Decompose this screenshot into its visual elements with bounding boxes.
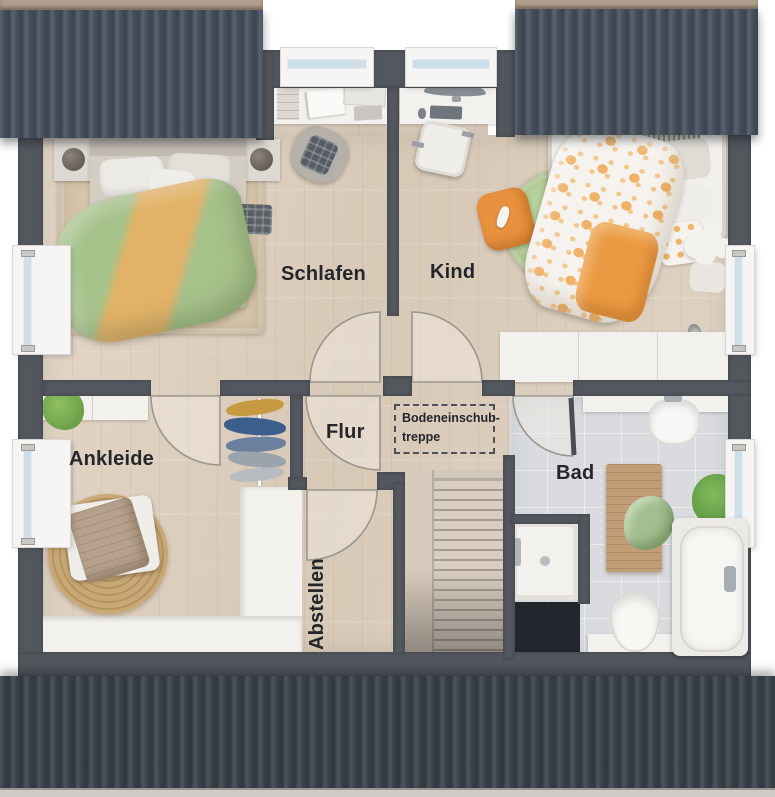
attic-hatch-line2: treppe bbox=[402, 428, 493, 447]
window-handle bbox=[21, 538, 35, 545]
roof-ridge-top-right bbox=[515, 0, 758, 9]
desk-chair bbox=[413, 119, 472, 178]
window-glass bbox=[287, 59, 367, 69]
floor-plan: Schlafen Kind Ankleide Flur Abstellen Ba… bbox=[0, 0, 775, 797]
door-arc-ankleide bbox=[151, 396, 220, 465]
wall-band-2 bbox=[220, 380, 310, 396]
wall-band-4 bbox=[573, 380, 751, 396]
roof-bottom bbox=[0, 676, 775, 788]
roof-ridge-top-left bbox=[0, 0, 263, 10]
window-handle bbox=[21, 250, 35, 257]
open-book bbox=[305, 88, 346, 118]
stair-shadow bbox=[405, 470, 503, 652]
monitor-stand bbox=[452, 96, 461, 102]
room-label-ankleide: Ankleide bbox=[69, 448, 154, 471]
wall-shower-right bbox=[578, 514, 590, 604]
window-handle bbox=[732, 444, 746, 451]
wall-band-1 bbox=[43, 380, 151, 396]
window-glass bbox=[412, 59, 490, 69]
bathtub-faucet bbox=[724, 566, 736, 592]
wall-band-center-block bbox=[383, 376, 412, 396]
door-arc-kind bbox=[412, 312, 482, 382]
room-label-flur: Flur bbox=[326, 421, 365, 444]
window-handle bbox=[732, 345, 746, 352]
wall-closet-right bbox=[290, 396, 303, 487]
window-handle bbox=[732, 250, 746, 257]
staircase bbox=[405, 470, 503, 652]
roof-top-left bbox=[0, 10, 263, 138]
sink bbox=[648, 399, 700, 445]
cloud-side-table bbox=[684, 234, 708, 258]
room-label-bad: Bad bbox=[556, 462, 594, 485]
wall-bad-left bbox=[503, 455, 515, 660]
wall-abstellen-left bbox=[288, 477, 307, 490]
window-dormer-kind bbox=[406, 48, 496, 86]
wardrobe-bottom-row bbox=[40, 616, 302, 652]
window-handle bbox=[21, 444, 35, 451]
shower-drain bbox=[540, 556, 550, 566]
wall-divider-schlafen-kind bbox=[387, 88, 399, 316]
dark-floor-panel bbox=[514, 602, 580, 652]
nightstand-left-lamp bbox=[62, 148, 85, 171]
wall-stairs-left bbox=[393, 482, 405, 655]
wall-bottom bbox=[18, 652, 751, 678]
nightstand-right-lamp bbox=[250, 148, 273, 171]
room-label-schlafen: Schlafen bbox=[281, 263, 366, 286]
window-kind bbox=[726, 246, 754, 354]
attic-hatch-annotation: Bodeneinschub- treppe bbox=[394, 404, 495, 454]
door-arc-bad bbox=[513, 396, 573, 456]
attic-hatch-line1: Bodeneinschub- bbox=[402, 409, 493, 428]
roof-gutter bbox=[0, 788, 775, 797]
pillow-small bbox=[689, 261, 727, 293]
books-row bbox=[354, 105, 383, 120]
sideboard-kind bbox=[500, 332, 738, 382]
wall-dormer-right bbox=[496, 50, 515, 137]
window-schlafen bbox=[13, 246, 70, 354]
door-leaf-bad bbox=[571, 398, 574, 455]
window-dormer-schlafen bbox=[281, 48, 373, 86]
double-bed-headboard bbox=[90, 136, 246, 156]
mouse bbox=[418, 108, 426, 119]
window-glass bbox=[23, 446, 32, 541]
wall-left bbox=[18, 137, 43, 678]
room-label-abstellen: Abstellen bbox=[306, 548, 329, 650]
room-label-kind: Kind bbox=[430, 261, 475, 284]
window-glass bbox=[734, 252, 743, 348]
window-glass bbox=[23, 252, 32, 348]
keyboard bbox=[430, 105, 462, 119]
door-arc-schlafen bbox=[310, 312, 380, 382]
window-ankleide bbox=[13, 440, 70, 547]
wall-band-3 bbox=[482, 380, 515, 396]
window-handle bbox=[21, 345, 35, 352]
roof-top-right bbox=[515, 9, 758, 135]
